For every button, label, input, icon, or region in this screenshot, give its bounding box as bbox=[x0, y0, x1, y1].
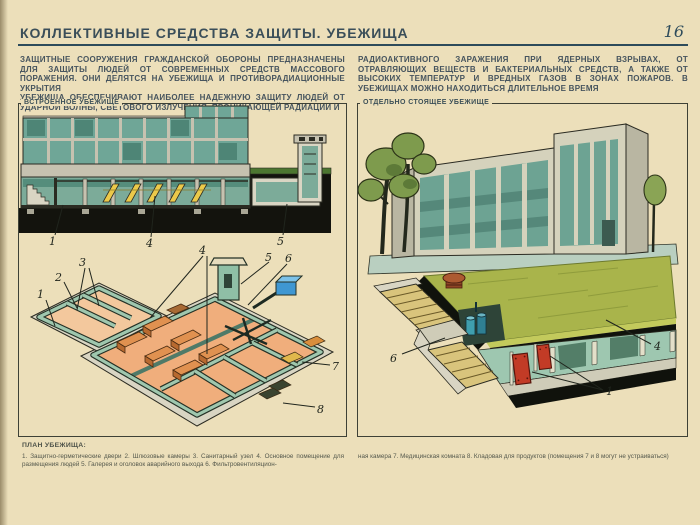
callout-number: 4 bbox=[145, 237, 153, 250]
mushroom-vent bbox=[443, 273, 465, 288]
callout-number: 8 bbox=[317, 403, 324, 416]
callout-number: 1 bbox=[606, 385, 613, 398]
callout-number: 5 bbox=[265, 251, 272, 264]
callout-number: 4 bbox=[653, 340, 661, 353]
blast-door bbox=[512, 353, 531, 385]
callout-number: 1 bbox=[37, 288, 44, 301]
building-door bbox=[602, 220, 615, 246]
callout-number: 6 bbox=[285, 252, 292, 265]
callout-number: 6 bbox=[390, 352, 397, 365]
callout-number: 2 bbox=[54, 271, 62, 284]
scan-edge-shadow bbox=[0, 0, 8, 525]
figure-built-in-shelter: ВСТРОЕННОЕ УБЕЖИЩЕ bbox=[18, 103, 347, 437]
figure-detached-shelter: ОТДЕЛЬНО СТОЯЩЕЕ УБЕЖИЩЕ bbox=[357, 103, 688, 437]
floor-slab bbox=[21, 164, 250, 177]
built-in-shelter-illustration: 1 4 5 bbox=[19, 104, 346, 436]
callout-number: 5 bbox=[277, 235, 284, 248]
legend-text-right: ная камера 7. Медицинская комната 8. Кла… bbox=[358, 453, 686, 461]
callout-number: 3 bbox=[79, 256, 86, 269]
header-rule bbox=[18, 44, 688, 46]
legend-heading: ПЛАН УБЕЖИЩА: bbox=[22, 442, 86, 449]
intro-column-right: РАДИОАКТИВНОГО ЗАРАЖЕНИЯ ПРИ ЯДЕРНЫХ ВЗР… bbox=[358, 55, 688, 93]
callout-number: 4 bbox=[198, 244, 206, 257]
blast-door bbox=[537, 344, 552, 369]
page-number: 16 bbox=[664, 22, 684, 41]
building-cross-section: 1 4 5 bbox=[19, 106, 331, 250]
callout-number: 1 bbox=[49, 235, 56, 248]
building bbox=[392, 124, 648, 258]
legend-text-left: 1. Защитно-герметические двери 2. Шлюзов… bbox=[22, 453, 344, 469]
intro-paragraph: ЗАЩИТНЫЕ СООРУЖЕНИЯ ГРАЖДАНСКОЙ ОБОРОНЫ … bbox=[20, 55, 345, 93]
callout-number: 7 bbox=[332, 360, 339, 373]
intro-paragraph: РАДИОАКТИВНОГО ЗАРАЖЕНИЯ ПРИ ЯДЕРНЫХ ВЗР… bbox=[358, 55, 688, 93]
page-title: КОЛЛЕКТИВНЫЕ СРЕДСТВА ЗАЩИТЫ. УБЕЖИЩА bbox=[20, 25, 540, 41]
shelter-plan: 1 2 3 4 5 6 7 8 bbox=[31, 244, 339, 426]
detached-shelter-illustration: 6 1 4 bbox=[358, 104, 687, 436]
